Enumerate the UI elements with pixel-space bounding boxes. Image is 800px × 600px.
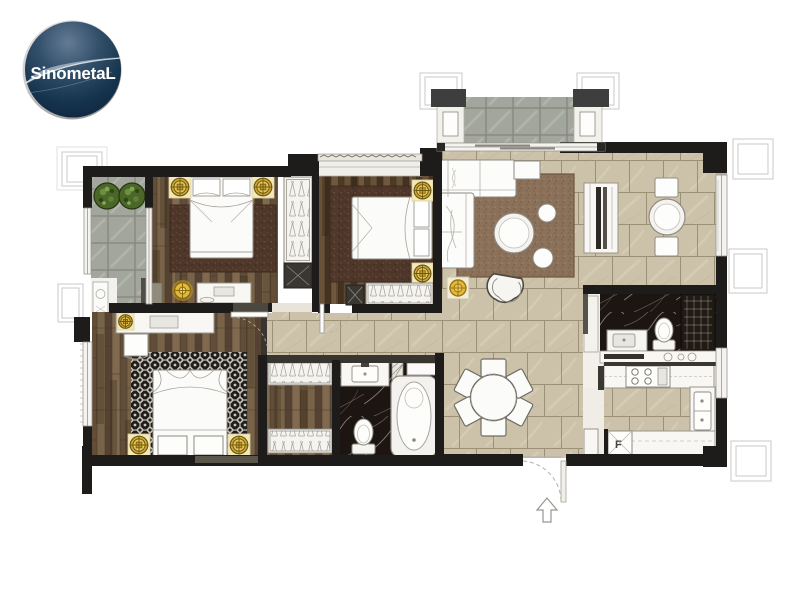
svg-text:SinometaL: SinometaL: [30, 64, 115, 83]
svg-text:F: F: [615, 439, 622, 451]
